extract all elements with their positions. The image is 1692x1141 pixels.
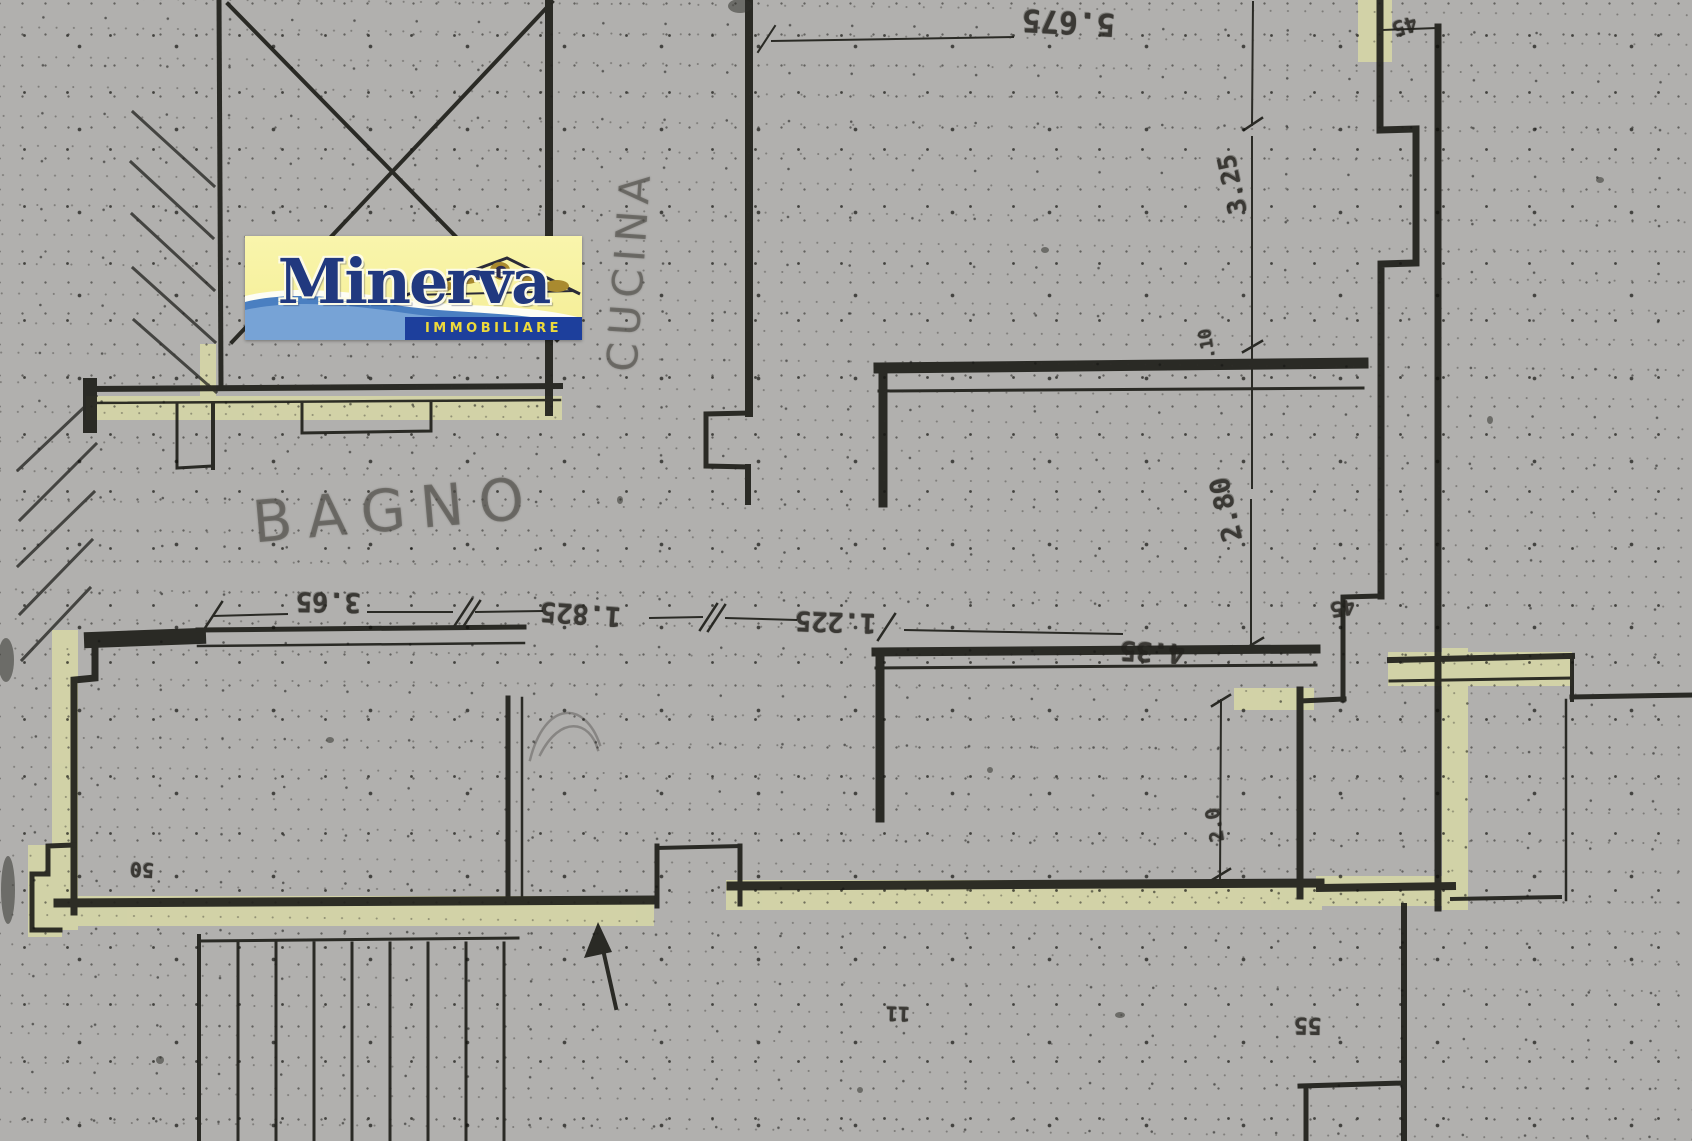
dimension-camera-width: 4.35: [1119, 634, 1186, 668]
highlighter-traces: [28, 0, 1572, 937]
logo-brand-text: Minerva: [245, 242, 582, 322]
minerva-logo: Minerva IMMOBILIARE: [245, 236, 582, 340]
entrance-door: [584, 846, 740, 1008]
upper-room-walls: [758, 26, 1363, 503]
entrance-arrow-icon: [584, 922, 612, 958]
dimension-lines: [205, 2, 1263, 884]
dimension-top-width: 5.675: [1021, 2, 1116, 43]
dimension-passage-width: 1.225: [794, 605, 876, 639]
scan-blotches: [0, 0, 1604, 1093]
floor-plan-drawing: [0, 0, 1692, 1141]
logo-tagline-band: IMMOBILIARE: [405, 317, 582, 340]
dimension-bagno-width: 3.65: [296, 585, 362, 617]
dimension-tick-mid-right: 45: [1328, 594, 1357, 622]
floor-plan-scan: BAGNO CUCINA 5.675 3.65 1.825 1.225 4.35…: [0, 0, 1692, 1141]
dimension-tick-bottom-left: 50: [129, 857, 154, 882]
staircase: [199, 936, 518, 1141]
right-outer-wall: [1343, 0, 1692, 908]
logo-tagline-text: IMMOBILIARE: [425, 321, 562, 336]
dimension-tick-bottom-center: 11: [886, 1002, 911, 1027]
pencil-scribble: [530, 713, 600, 760]
dimension-tick-bottom-right: 55: [1294, 1012, 1322, 1038]
interior-partition: [508, 698, 522, 900]
left-outer-wall: [32, 648, 652, 930]
dimension-hall-width: 1.825: [539, 595, 622, 632]
lower-right-room: [1300, 690, 1404, 1141]
